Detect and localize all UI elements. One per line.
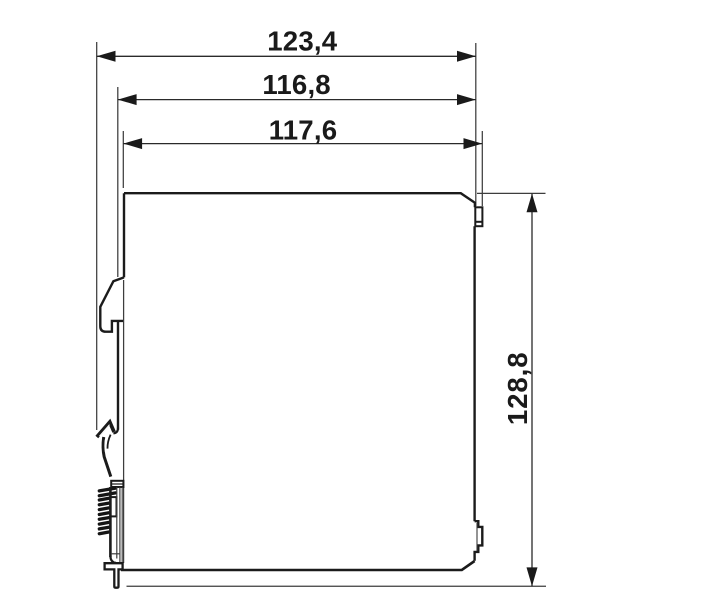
svg-text:128,8: 128,8 bbox=[502, 352, 533, 426]
svg-text:117,6: 117,6 bbox=[269, 114, 338, 145]
svg-text:116,8: 116,8 bbox=[262, 69, 331, 100]
svg-text:123,4: 123,4 bbox=[267, 26, 338, 57]
